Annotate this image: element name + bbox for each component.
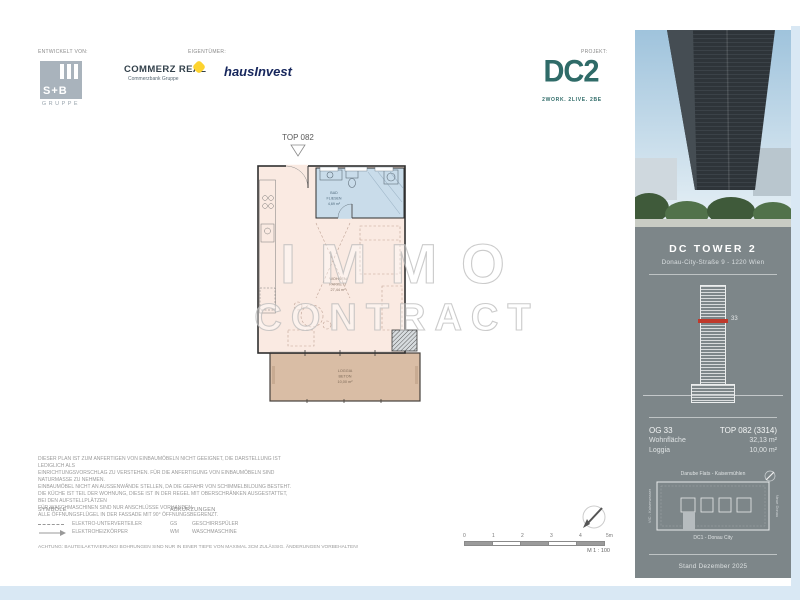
loggia-floor-label: BETON [338,375,351,379]
floor-marker-label: 33 [731,316,738,322]
disclaimer-line: DIE KÜCHE IST TEIL DER WOHNUNG, DIESE IS… [38,491,293,505]
scale-tick: 2 [521,533,524,539]
tower-photo [635,30,791,227]
abbr1-value: GESCHIRRSPÜLER [192,521,238,527]
disclaimer-line: EINRICHTUNGSVORSCHLAG ZU VERSTEHEN. FÜR … [38,470,293,484]
divider [649,274,777,275]
abbr2-value: WASCHMASCHINE [192,529,237,535]
dashed-line-symbol-icon [38,524,64,525]
plan-version: Stand Dezember 2025 [635,563,791,570]
bath-floor-label: FLIESEN [327,197,342,201]
loggia-name-label: LOGGIA [338,369,353,373]
page-frame-right [791,26,800,600]
building-address: Donau-City-Straße 9 - 1220 Wien [635,259,791,266]
symbols-title: SYMBOLE [38,507,67,513]
siteplan-right-label: Neue Donau [775,495,780,517]
siteplan-top-label: Danube Flats - Kaisermühlen [681,471,746,477]
divider [649,554,777,555]
bathroom-area: BAD FLIESEN 4,69 m² [316,167,404,218]
scale-tick: 0 [463,533,466,539]
plan-unit-label: TOP 082 [282,133,314,142]
disclaimer-line: FÜR WASCHMASCHINEN SIND NUR ANSCHLÜSSE V… [38,505,293,512]
developed-by-label: ENTWICKELT VON: [38,49,88,55]
shaft-hatched [392,330,417,351]
hausinvest-logo-text: hausInvest [224,64,292,79]
bath-name-label: BAD [330,191,338,195]
tower-base [691,384,735,403]
tower-floor-diagram: 33 [649,283,777,409]
siteplan-unit-highlight [683,512,695,530]
dc2-tagline: 2WORK. 2LIVE. 2BE [532,97,612,103]
scale-bar [465,541,605,546]
loggia-label: Loggia [649,446,670,456]
building-name: DC TOWER 2 [635,243,791,255]
page-frame-bottom [0,586,800,600]
disclaimer-line: ALLE ÖFFNUNGSFLÜGEL IN DER FASSADE MIT 9… [38,512,293,519]
siteplan-cores [681,498,751,512]
disclaimer-block: DIESER PLAN IST ZUM ANFERTIGEN VON EINBA… [38,456,293,519]
abbreviations-title: ABKÜRZUNGEN [170,507,215,513]
loggia-area-label: 10,00 m² [338,380,354,384]
symbol2-label: ELEKTROHEIZKÖRPER [72,529,128,535]
site-plan: Danube Flats - Kaisermühlen VIC - Kaiser… [643,468,783,546]
loggia-value: 10,00 m² [749,446,777,456]
warning-note: ACHTUNG: BAUTEILAKTIVIERUNG! BOHRUNGEN S… [38,545,358,550]
unit-floor: OG 33 [649,426,673,436]
sb-logo-text: S+B [43,85,68,97]
floor-plan: TOP 082 [250,128,440,418]
living-floor-label: PARKETT [329,283,347,287]
scale-tick: 1 [492,533,495,539]
siteplan-bottom-label: DC1 - Donau City [693,535,733,541]
owner-label: EIGENTÜMER: [188,49,226,55]
sb-logo-bars-icon [60,64,78,79]
sb-gruppe-label: GRUPPE [40,101,82,107]
dc2-logo-text: DC2 [538,55,604,91]
symbol1-label: ELEKTRO-UNTERVERTEILER [72,521,142,527]
north-arrow-icon [576,502,612,534]
bath-area-label: 4,69 m² [328,202,341,206]
divider [649,417,777,418]
scale-tick: 3 [550,533,553,539]
sb-gruppe-logo: S+B [40,61,82,99]
disclaimer-line: DIESER PLAN IST ZUM ANFERTIGEN VON EINBA… [38,456,293,470]
entrance-marker-icon [291,145,305,156]
abbr2-key: WM [170,529,179,535]
area-label: Wohnfläche [649,436,686,446]
scale-label: M 1 : 100 [556,548,610,554]
tower-body [700,285,726,385]
disclaimer-line: EINBAUMÖBEL NICHT AN AUSSENWÄNDE STELLEN… [38,484,293,491]
living-area-label: 27,44 m² [331,288,347,292]
plan-document-page: ENTWICKELT VON: EIGENTÜMER: PROJEKT: S+B… [0,0,800,600]
unit-number: TOP 082 (3314) [720,426,777,436]
siteplan-left-label: VIC - Kaiserwasser [647,488,652,523]
sidebar: DC TOWER 2 Donau-City-Straße 9 - 1220 Wi… [635,30,791,578]
abbr1-key: GS [170,521,177,527]
info-panel: DC TOWER 2 Donau-City-Straße 9 - 1220 Wi… [635,227,791,578]
arrow-line-symbol-icon [38,529,66,537]
area-value: 32,13 m² [749,436,777,446]
living-name-label: WOHNEN [329,277,347,281]
floor-marker [698,319,728,323]
commerzbank-gruppe-label: Commerzbank Gruppe [128,76,179,82]
